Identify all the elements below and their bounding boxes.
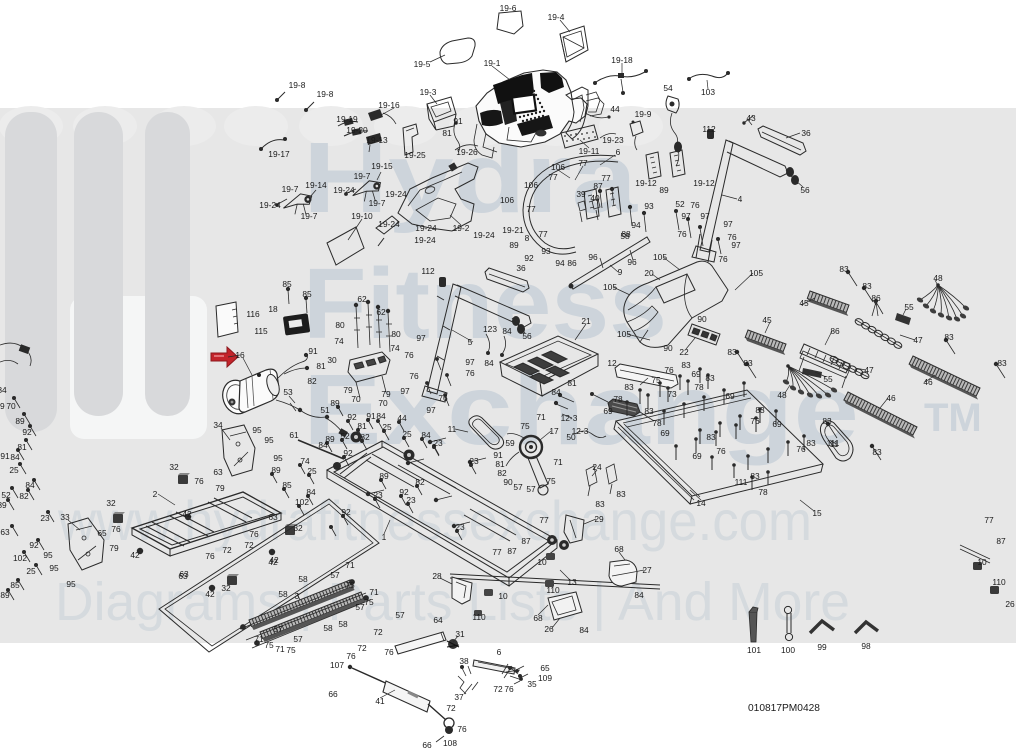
svg-text:98: 98 <box>861 641 871 651</box>
svg-text:82: 82 <box>360 432 370 442</box>
svg-text:79: 79 <box>0 401 5 411</box>
svg-text:38: 38 <box>459 656 469 666</box>
svg-text:45: 45 <box>762 315 772 325</box>
svg-text:50: 50 <box>566 432 576 442</box>
svg-text:99: 99 <box>817 642 827 652</box>
svg-text:52: 52 <box>675 199 685 209</box>
svg-text:77: 77 <box>526 204 536 214</box>
svg-text:53: 53 <box>283 387 293 397</box>
svg-text:31: 31 <box>455 629 465 639</box>
svg-text:91: 91 <box>366 411 376 421</box>
svg-text:105: 105 <box>653 252 667 262</box>
svg-text:57: 57 <box>293 634 303 644</box>
svg-text:81: 81 <box>442 128 452 138</box>
svg-text:76: 76 <box>111 524 121 534</box>
svg-text:4: 4 <box>738 194 743 204</box>
svg-text:83: 83 <box>624 382 634 392</box>
svg-text:52: 52 <box>340 431 350 441</box>
svg-text:84: 84 <box>502 326 512 336</box>
svg-text:97: 97 <box>731 240 741 250</box>
svg-text:92: 92 <box>347 412 357 422</box>
svg-text:42: 42 <box>205 589 215 599</box>
svg-text:90: 90 <box>663 343 673 353</box>
svg-text:83: 83 <box>997 358 1007 368</box>
svg-text:71: 71 <box>345 560 355 570</box>
svg-text:19-24: 19-24 <box>414 235 436 245</box>
svg-text:76: 76 <box>249 529 259 539</box>
svg-text:37: 37 <box>454 692 464 702</box>
svg-text:3: 3 <box>295 591 300 601</box>
svg-text:86: 86 <box>830 326 840 336</box>
svg-text:84: 84 <box>10 452 20 462</box>
svg-text:89: 89 <box>15 416 25 426</box>
svg-text:87: 87 <box>507 546 517 556</box>
svg-text:78: 78 <box>694 382 704 392</box>
svg-text:70: 70 <box>6 401 16 411</box>
svg-text:12: 12 <box>607 358 617 368</box>
svg-text:48: 48 <box>777 390 787 400</box>
svg-text:105: 105 <box>603 282 617 292</box>
svg-text:57: 57 <box>273 624 283 634</box>
svg-text:23: 23 <box>433 438 443 448</box>
svg-text:72: 72 <box>222 545 232 555</box>
svg-text:84: 84 <box>376 411 386 421</box>
svg-text:75: 75 <box>651 375 661 385</box>
svg-text:95: 95 <box>273 453 283 463</box>
svg-text:63: 63 <box>0 527 10 537</box>
svg-text:29: 29 <box>594 514 604 524</box>
svg-text:83: 83 <box>644 406 654 416</box>
svg-text:25: 25 <box>382 422 392 432</box>
svg-text:19-5: 19-5 <box>414 59 431 69</box>
svg-text:55: 55 <box>823 374 833 384</box>
svg-text:19-6: 19-6 <box>500 3 517 13</box>
svg-text:30: 30 <box>327 355 337 365</box>
svg-text:76: 76 <box>384 647 394 657</box>
svg-text:56: 56 <box>522 331 532 341</box>
svg-text:19-7: 19-7 <box>282 184 299 194</box>
svg-text:13: 13 <box>567 577 577 587</box>
svg-text:83: 83 <box>743 358 753 368</box>
svg-text:14: 14 <box>696 498 706 508</box>
svg-text:34: 34 <box>213 420 223 430</box>
svg-text:25: 25 <box>9 465 19 475</box>
svg-text:73: 73 <box>667 389 677 399</box>
svg-text:66: 66 <box>422 740 432 750</box>
svg-text:19-3: 19-3 <box>420 87 437 97</box>
svg-text:69: 69 <box>772 419 782 429</box>
svg-text:42: 42 <box>269 555 279 565</box>
svg-text:103: 103 <box>701 87 715 97</box>
svg-text:8: 8 <box>525 233 530 243</box>
svg-text:19-26: 19-26 <box>456 147 478 157</box>
svg-text:10: 10 <box>977 557 987 567</box>
svg-text:83: 83 <box>862 281 872 291</box>
svg-text:89: 89 <box>0 500 7 510</box>
svg-text:23: 23 <box>469 456 479 466</box>
svg-text:19-1: 19-1 <box>484 58 501 68</box>
svg-text:56: 56 <box>800 185 810 195</box>
svg-text:45: 45 <box>799 298 809 308</box>
svg-text:105: 105 <box>617 329 631 339</box>
svg-text:116: 116 <box>246 309 260 319</box>
svg-text:94: 94 <box>555 258 565 268</box>
svg-text:85: 85 <box>282 279 292 289</box>
svg-text:89: 89 <box>659 185 669 195</box>
svg-text:83: 83 <box>839 264 849 274</box>
svg-text:112: 112 <box>702 124 716 134</box>
svg-text:102: 102 <box>295 497 309 507</box>
svg-text:84: 84 <box>0 385 7 395</box>
svg-text:89: 89 <box>509 240 519 250</box>
svg-text:76: 76 <box>457 724 467 734</box>
svg-text:97: 97 <box>465 357 475 367</box>
svg-text:83: 83 <box>944 332 954 342</box>
svg-text:19-24: 19-24 <box>473 230 495 240</box>
svg-text:36: 36 <box>516 263 526 273</box>
svg-text:75: 75 <box>286 645 296 655</box>
svg-text:6: 6 <box>497 647 502 657</box>
svg-text:81: 81 <box>357 421 367 431</box>
svg-text:46: 46 <box>886 393 896 403</box>
svg-text:77: 77 <box>984 515 994 525</box>
svg-text:61: 61 <box>289 430 299 440</box>
svg-text:106: 106 <box>551 162 565 172</box>
svg-text:23: 23 <box>40 513 50 523</box>
svg-text:77: 77 <box>539 515 549 525</box>
svg-text:19-23: 19-23 <box>602 135 624 145</box>
svg-text:110: 110 <box>546 585 560 595</box>
svg-text:76: 76 <box>438 393 448 403</box>
svg-text:57: 57 <box>513 482 523 492</box>
svg-text:82: 82 <box>19 491 29 501</box>
svg-text:71: 71 <box>254 634 264 644</box>
svg-text:77: 77 <box>538 229 548 239</box>
svg-text:57: 57 <box>330 570 340 580</box>
svg-text:81: 81 <box>316 361 326 371</box>
svg-text:62: 62 <box>357 294 367 304</box>
svg-text:72: 72 <box>357 643 367 653</box>
svg-text:91: 91 <box>0 451 10 461</box>
svg-text:95: 95 <box>66 579 76 589</box>
svg-text:83: 83 <box>705 373 715 383</box>
svg-text:87: 87 <box>996 536 1006 546</box>
svg-text:97: 97 <box>700 211 710 221</box>
svg-text:78: 78 <box>652 418 662 428</box>
svg-text:83: 83 <box>755 405 765 415</box>
svg-text:1: 1 <box>382 532 387 542</box>
svg-text:83: 83 <box>727 347 737 357</box>
svg-text:84: 84 <box>318 440 328 450</box>
svg-text:19-20: 19-20 <box>346 125 368 135</box>
svg-text:105: 105 <box>749 268 763 278</box>
svg-text:108: 108 <box>443 738 457 748</box>
svg-text:15: 15 <box>812 508 822 518</box>
svg-text:40: 40 <box>590 193 600 203</box>
svg-text:91: 91 <box>308 346 318 356</box>
svg-text:25: 25 <box>402 429 412 439</box>
svg-text:44: 44 <box>610 104 620 114</box>
svg-text:90: 90 <box>697 314 707 324</box>
svg-text:96: 96 <box>627 257 637 267</box>
svg-text:75: 75 <box>264 640 274 650</box>
svg-text:109: 109 <box>538 673 552 683</box>
svg-text:58: 58 <box>298 574 308 584</box>
svg-text:42: 42 <box>130 550 140 560</box>
svg-text:75: 75 <box>520 421 530 431</box>
svg-text:32: 32 <box>106 498 116 508</box>
svg-text:19-25: 19-25 <box>404 150 426 160</box>
svg-text:19-19: 19-19 <box>336 114 358 124</box>
svg-text:83: 83 <box>595 499 605 509</box>
svg-text:19-7: 19-7 <box>301 211 318 221</box>
svg-text:76: 76 <box>677 229 687 239</box>
svg-text:6: 6 <box>616 147 621 157</box>
svg-text:19-8: 19-8 <box>289 80 306 90</box>
svg-text:102: 102 <box>13 553 27 563</box>
svg-text:101: 101 <box>747 645 761 655</box>
svg-text:95: 95 <box>49 563 59 573</box>
svg-text:19-14: 19-14 <box>305 180 327 190</box>
svg-text:106: 106 <box>524 180 538 190</box>
svg-text:55: 55 <box>904 302 914 312</box>
svg-text:86: 86 <box>871 293 881 303</box>
svg-text:19-13: 19-13 <box>366 135 388 145</box>
svg-text:12-3: 12-3 <box>561 413 578 423</box>
svg-text:46: 46 <box>923 377 933 387</box>
svg-text:47: 47 <box>864 365 874 375</box>
svg-text:76: 76 <box>465 368 475 378</box>
svg-text:74: 74 <box>300 456 310 466</box>
svg-text:76: 76 <box>205 551 215 561</box>
svg-text:20: 20 <box>644 268 654 278</box>
svg-text:44: 44 <box>397 413 407 423</box>
svg-text:16: 16 <box>235 350 245 360</box>
svg-text:10: 10 <box>498 591 508 601</box>
svg-text:19-12: 19-12 <box>693 178 715 188</box>
svg-text:22: 22 <box>679 347 689 357</box>
svg-text:83: 83 <box>750 471 760 481</box>
svg-text:19-24: 19-24 <box>259 200 281 210</box>
svg-text:92: 92 <box>343 448 353 458</box>
svg-text:59: 59 <box>505 438 515 448</box>
svg-text:83: 83 <box>681 360 691 370</box>
svg-text:27: 27 <box>642 565 652 575</box>
svg-text:48: 48 <box>933 273 943 283</box>
svg-text:81: 81 <box>17 442 27 452</box>
svg-text:54: 54 <box>663 83 673 93</box>
svg-text:19-24: 19-24 <box>415 223 437 233</box>
svg-text:123: 123 <box>483 324 497 334</box>
svg-text:21: 21 <box>581 316 591 326</box>
svg-text:57: 57 <box>355 602 365 612</box>
svg-text:85: 85 <box>10 580 20 590</box>
svg-text:83: 83 <box>872 447 882 457</box>
svg-text:010817PM0428: 010817PM0428 <box>748 703 820 714</box>
svg-text:57: 57 <box>526 484 536 494</box>
svg-text:19-10: 19-10 <box>351 211 373 221</box>
svg-text:2: 2 <box>153 489 158 499</box>
svg-text:112: 112 <box>421 266 435 276</box>
svg-text:83: 83 <box>706 432 716 442</box>
svg-text:19-8: 19-8 <box>317 89 334 99</box>
svg-text:5: 5 <box>468 337 473 347</box>
svg-text:19-2: 19-2 <box>453 223 470 233</box>
svg-text:19-17: 19-17 <box>268 149 290 159</box>
svg-text:9: 9 <box>618 267 623 277</box>
svg-text:70: 70 <box>351 394 361 404</box>
svg-text:19-24: 19-24 <box>385 189 407 199</box>
svg-text:76: 76 <box>664 365 674 375</box>
svg-text:52: 52 <box>1 490 11 500</box>
svg-text:69: 69 <box>660 428 670 438</box>
svg-text:58: 58 <box>323 623 333 633</box>
svg-text:68: 68 <box>533 613 543 623</box>
svg-text:28: 28 <box>432 571 442 581</box>
svg-text:72: 72 <box>244 540 254 550</box>
svg-text:80: 80 <box>335 320 345 330</box>
svg-text:62: 62 <box>376 307 386 317</box>
svg-text:72: 72 <box>493 684 503 694</box>
svg-text:79: 79 <box>215 483 225 493</box>
svg-text:76: 76 <box>716 446 726 456</box>
svg-text:11: 11 <box>830 439 839 449</box>
svg-text:69: 69 <box>725 391 735 401</box>
svg-text:97: 97 <box>426 405 436 415</box>
svg-text:70: 70 <box>378 398 388 408</box>
svg-text:91: 91 <box>453 116 463 126</box>
svg-text:17: 17 <box>549 426 559 436</box>
svg-text:19-24: 19-24 <box>378 219 400 229</box>
svg-text:26: 26 <box>544 624 554 634</box>
svg-text:57: 57 <box>395 610 405 620</box>
svg-text:19-15: 19-15 <box>371 161 393 171</box>
svg-text:95: 95 <box>264 435 274 445</box>
svg-text:81: 81 <box>567 378 577 388</box>
svg-text:58: 58 <box>620 231 630 241</box>
svg-text:75: 75 <box>546 476 556 486</box>
svg-text:106: 106 <box>500 195 514 205</box>
svg-text:71: 71 <box>553 457 563 467</box>
svg-text:100: 100 <box>781 645 795 655</box>
svg-text:92: 92 <box>22 427 32 437</box>
svg-text:84: 84 <box>306 487 316 497</box>
svg-text:69: 69 <box>603 406 613 416</box>
svg-text:63: 63 <box>179 569 189 579</box>
svg-text:80: 80 <box>391 329 401 339</box>
svg-text:66: 66 <box>328 689 338 699</box>
svg-text:23: 23 <box>406 495 416 505</box>
svg-text:47: 47 <box>913 335 923 345</box>
svg-text:94: 94 <box>631 220 641 230</box>
svg-text:19-12: 19-12 <box>635 178 657 188</box>
svg-text:77: 77 <box>548 172 558 182</box>
svg-text:32: 32 <box>221 583 231 593</box>
svg-text:23: 23 <box>455 522 465 532</box>
svg-text:18: 18 <box>268 304 278 314</box>
svg-text:76: 76 <box>194 476 204 486</box>
svg-text:74: 74 <box>390 343 400 353</box>
svg-text:90: 90 <box>503 477 513 487</box>
svg-text:19-16: 19-16 <box>378 100 400 110</box>
svg-text:84: 84 <box>25 480 35 490</box>
svg-text:77: 77 <box>601 173 611 183</box>
svg-text:76: 76 <box>404 350 414 360</box>
svg-text:19-4: 19-4 <box>548 12 565 22</box>
svg-text:76: 76 <box>718 254 728 264</box>
svg-text:83: 83 <box>616 489 626 499</box>
svg-text:19-7: 19-7 <box>354 171 371 181</box>
svg-text:96: 96 <box>588 252 598 262</box>
svg-text:92: 92 <box>524 253 534 263</box>
svg-text:24: 24 <box>592 462 602 472</box>
svg-text:87: 87 <box>521 536 531 546</box>
svg-text:87: 87 <box>593 181 603 191</box>
svg-text:78: 78 <box>758 487 768 497</box>
svg-text:107: 107 <box>330 660 344 670</box>
svg-text:26: 26 <box>1005 599 1015 609</box>
svg-text:84: 84 <box>551 387 561 397</box>
svg-text:72: 72 <box>373 627 383 637</box>
svg-text:TM: TM <box>924 396 982 440</box>
svg-text:82: 82 <box>307 376 317 386</box>
svg-text:89: 89 <box>271 465 281 475</box>
svg-text:111: 111 <box>735 477 748 487</box>
svg-text:32: 32 <box>169 462 179 472</box>
svg-text:71: 71 <box>536 412 546 422</box>
svg-text:97: 97 <box>723 219 733 229</box>
svg-text:35: 35 <box>527 679 537 689</box>
svg-text:25: 25 <box>307 466 317 476</box>
svg-text:11: 11 <box>448 424 457 434</box>
svg-text:19-18: 19-18 <box>611 55 633 65</box>
svg-text:95: 95 <box>252 425 262 435</box>
svg-text:19-11: 19-11 <box>579 146 600 156</box>
svg-text:76: 76 <box>796 444 806 454</box>
svg-text:85: 85 <box>302 289 312 299</box>
svg-text:19-9: 19-9 <box>635 109 652 119</box>
svg-text:76: 76 <box>409 371 419 381</box>
svg-text:58: 58 <box>338 619 348 629</box>
svg-text:36: 36 <box>801 128 811 138</box>
svg-text:84: 84 <box>421 430 431 440</box>
svg-text:75: 75 <box>345 580 355 590</box>
svg-text:84: 84 <box>579 625 589 635</box>
svg-text:83: 83 <box>806 438 816 448</box>
svg-text:86: 86 <box>567 258 577 268</box>
svg-text:65: 65 <box>540 663 550 673</box>
svg-text:89: 89 <box>330 398 340 408</box>
svg-text:19-24: 19-24 <box>333 185 355 195</box>
svg-text:97: 97 <box>681 211 691 221</box>
svg-text:65: 65 <box>97 528 107 538</box>
svg-text:79: 79 <box>109 543 119 553</box>
svg-text:58: 58 <box>278 589 288 599</box>
svg-text:63: 63 <box>213 467 223 477</box>
svg-text:110: 110 <box>992 577 1006 587</box>
svg-text:76: 76 <box>346 651 356 661</box>
svg-text:83: 83 <box>822 416 832 426</box>
svg-text:43: 43 <box>746 113 756 123</box>
svg-text:51: 51 <box>320 405 330 415</box>
svg-text:76: 76 <box>690 200 700 210</box>
svg-text:19-7: 19-7 <box>369 198 386 208</box>
svg-text:64: 64 <box>433 615 443 625</box>
svg-text:74: 74 <box>334 336 344 346</box>
svg-text:97: 97 <box>400 386 410 396</box>
svg-text:82: 82 <box>415 477 425 487</box>
svg-text:41: 41 <box>375 696 385 706</box>
